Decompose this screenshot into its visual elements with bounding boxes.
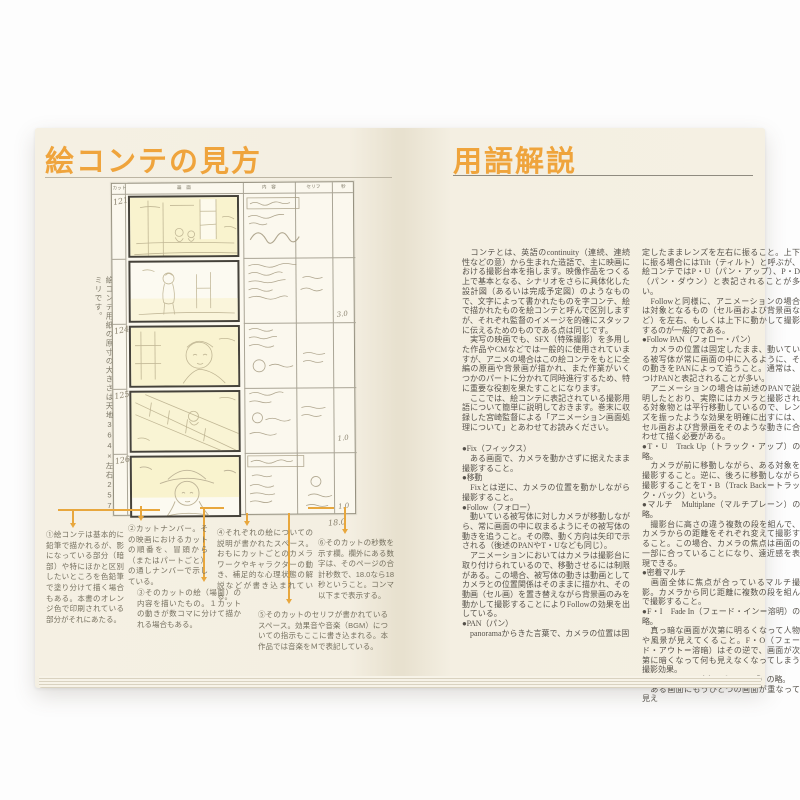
storyboard-frame-2: [128, 260, 239, 323]
connector-line: [308, 507, 334, 509]
paragraph: ここでは、絵コンテに表記されている撮影用語について簡単に説明しておきます。巻末に…: [462, 394, 630, 433]
annotation-5: ⑤そのカットのセリフが書かれているスペース。効果音や音楽（BGM）についての指示…: [258, 610, 388, 652]
annotation-1: ①絵コンテは基本的に鉛筆で描かれるが、影になっている部分（暗部）や特にほかと区別…: [46, 530, 124, 625]
storyboard-frame-3: [129, 325, 240, 388]
sheet-header-content: 内 容: [254, 184, 284, 190]
cut-number: 124: [113, 324, 130, 336]
sheet-header-dialogue: セリフ: [303, 183, 324, 189]
right-page-title: 用語解説: [453, 138, 577, 180]
frame-sketch-child: [130, 262, 239, 323]
annotation-4: ④それぞれの絵についての説明が書かれたスペース。おもにカットごとのカメラワークや…: [217, 528, 313, 602]
glossary-term-heading: ●Follow（フォロー）: [462, 503, 630, 513]
storyboard-sheet: カット 画 面 内 容 セリフ 秒 121 124 125 126 3.0 1.…: [111, 181, 356, 516]
paragraph: Fixとは逆に、カメラの位置を動かしながら撮影すること。: [462, 483, 630, 502]
frame-sketch-face: [131, 327, 240, 388]
cut-number: 121: [112, 195, 129, 207]
paragraph: ある画面で、カメラを動かさずに据えたまま撮影すること。: [462, 454, 630, 473]
annotation-6: ⑥そのカットの秒数を示す欄。欄外にある数字は、そのページの合計秒数で、18.0な…: [318, 538, 394, 602]
frame-sketch-stairs: [131, 392, 240, 453]
cut-number: 126: [114, 454, 131, 466]
paragraph: コンテとは、英語のcontinuity（連続、連続性などの意）から生まれた造語で…: [462, 248, 630, 335]
glossary-term-heading: ●移動: [462, 473, 630, 483]
connector-arrow-1: [72, 509, 74, 523]
book-spread-photo: 絵コンテの見方 絵コンテ用紙の原寸の大きさは天地364×左右257ミリです。: [0, 0, 800, 800]
glossary-term-heading: ●PAN（パン）: [462, 619, 630, 629]
storyboard-frame-4: [129, 390, 240, 453]
paragraph: カメラの位置は固定したまま、動いている被写体が常に画面の中に入るように、その動き…: [642, 345, 800, 384]
glossary-term-heading: ●Fix（フィックス）: [462, 444, 630, 454]
paragraph: アニメーションの場合は前述のPANで説明したとおり、実際にはカメラと撮影される対…: [642, 384, 800, 442]
left-page: 絵コンテの見方 絵コンテ用紙の原寸の大きさは天地364×左右257ミリです。: [35, 128, 400, 676]
paragraph: アニメーションにおいてはカメラは撮影台に取り付けられているので、移動させるには制…: [462, 551, 630, 619]
sheet-header-cut: カット: [112, 185, 125, 191]
left-title-rule: [45, 177, 392, 178]
arrowhead-6: [342, 529, 348, 534]
sheet-header-picture: 画 面: [150, 184, 218, 190]
paragraph: 実写の映画でも、SFX（特殊撮影）を多用した作品やCMなどでは一般的に使用されて…: [462, 335, 630, 393]
glossary-column-1: コンテとは、英語のcontinuity（連続、連続性などの意）から生まれた造語で…: [462, 248, 630, 638]
paragraph: panoramaからきた言葉で、カメラの位置は固: [462, 629, 630, 639]
glossary-term-heading: ●F・I Fade In（フェード・イン＝溶明）の略。: [642, 607, 800, 626]
paragraph: Followと同様に、アニメーションの場合は対象となるもの（セル画および背景画な…: [642, 297, 800, 336]
glossary-column-2: 定したままレンズを左右に振ること。上下に振る場合にはTilt（ティルト）と呼ぶが…: [642, 248, 800, 704]
connector-arrow-4: [246, 513, 248, 521]
glossary-term-heading: ●密着マルチ: [642, 568, 800, 578]
right-page: 用語解説 コンテとは、英語のcontinuity（連続、連続性などの意）から生ま…: [400, 128, 765, 676]
glossary-term-heading: ●マルチ Multiplane（マルチプレーン）の略。: [642, 500, 800, 519]
book-page-edges: [39, 676, 761, 688]
arrowhead-1: [70, 523, 76, 528]
paragraph: カメラが前に移動しながら、ある対象を撮影すること。逆に、後ろに移動しながら撮影す…: [642, 461, 800, 500]
cut-number: 125: [114, 389, 131, 401]
left-page-title: 絵コンテの見方: [45, 138, 262, 180]
sheet-row-sep: [112, 259, 125, 260]
paragraph: 定したままレンズを左右に振ること。上下に振る場合にはTilt（ティルト）と呼ぶが…: [642, 248, 800, 297]
frame-sketch-interior: [130, 197, 239, 258]
paragraph: 動いている被写体に対しカメラが移動しながら、常に画面の中に収まるようにその被写体…: [462, 512, 630, 551]
connector-arrow-2: [140, 506, 142, 516]
connector-arrow-6: [344, 507, 346, 529]
paragraph: 撮影台に高さの違う複数の段を組んで、カメラからの距離をそれぞれ変えて撮影すること…: [642, 520, 800, 569]
open-book: 絵コンテの見方 絵コンテ用紙の原寸の大きさは天地364×左右257ミリです。: [35, 128, 765, 688]
arrowhead-4: [244, 521, 250, 526]
handwritten-notes: [244, 193, 356, 516]
storyboard-frame-1: [128, 195, 239, 258]
sheet-header-seconds: 秒: [337, 183, 350, 189]
annotation-2: ②カットナンバー。その映画におけるカットの順番を、冒頭から（またはパートごと）の…: [128, 524, 208, 588]
glossary-term-heading: ●Follow PAN（フォロー・パン）: [642, 335, 800, 345]
paragraph: 真っ暗な画面が次第に明るくなって人物や風景が見えてくること。F・O（フェード・ア…: [642, 626, 800, 675]
paragraph: 画面全体に焦点が合っているマルチ撮影。カメラから同じ距離に複数の段を組んで撮影す…: [642, 578, 800, 607]
right-title-rule: [453, 175, 753, 176]
arrowhead-2: [138, 516, 144, 521]
glossary-term-heading: ●T・U Track Up（トラック・アップ）の略。: [642, 442, 800, 461]
